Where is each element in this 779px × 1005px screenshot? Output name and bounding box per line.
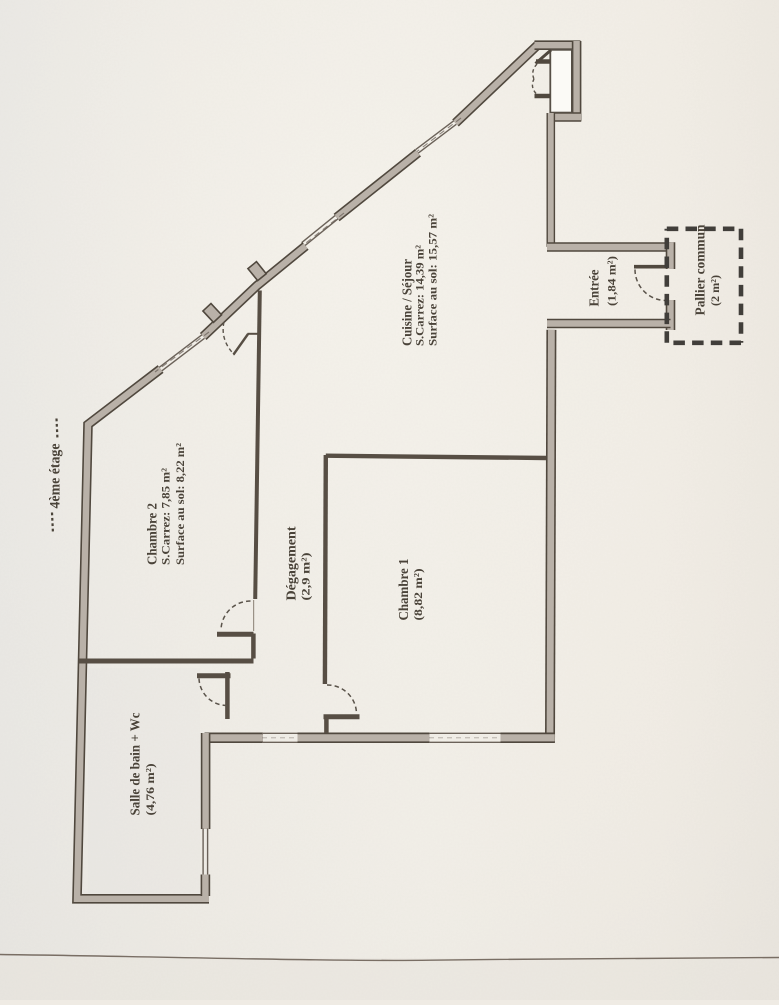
svg-text:(2 m²): (2 m²) (708, 275, 722, 306)
svg-text:Entrée: Entrée (587, 270, 602, 307)
svg-text:S.Carrez: 7,85 m²: S.Carrez: 7,85 m² (159, 468, 173, 565)
svg-text:Surface au sol: 8,22 m²: Surface au sol: 8,22 m² (173, 443, 187, 565)
svg-text:(4,76 m²): (4,76 m²) (143, 763, 157, 815)
svg-text:Dégagement: Dégagement (284, 526, 299, 600)
svg-text:(8,82 m²): (8,82 m²) (411, 568, 425, 620)
svg-text:Surface au sol: 15,57 m²: Surface au sol: 15,57 m² (426, 214, 440, 346)
svg-text:Pallier commun: Pallier commun (693, 224, 708, 315)
svg-text:S.Carrez: 14,39 m²: S.Carrez: 14,39 m² (413, 245, 427, 346)
svg-text:Salle de bain + Wc: Salle de bain + Wc (128, 713, 143, 816)
svg-text:Chambre 1: Chambre 1 (396, 558, 411, 620)
svg-text:(2,9 m²): (2,9 m²) (299, 552, 313, 600)
svg-text:(1,84 m²): (1,84 m²) (605, 256, 619, 306)
svg-text:Chambre 2: Chambre 2 (145, 503, 160, 565)
svg-text:4ème étage: 4ème étage (48, 443, 64, 509)
